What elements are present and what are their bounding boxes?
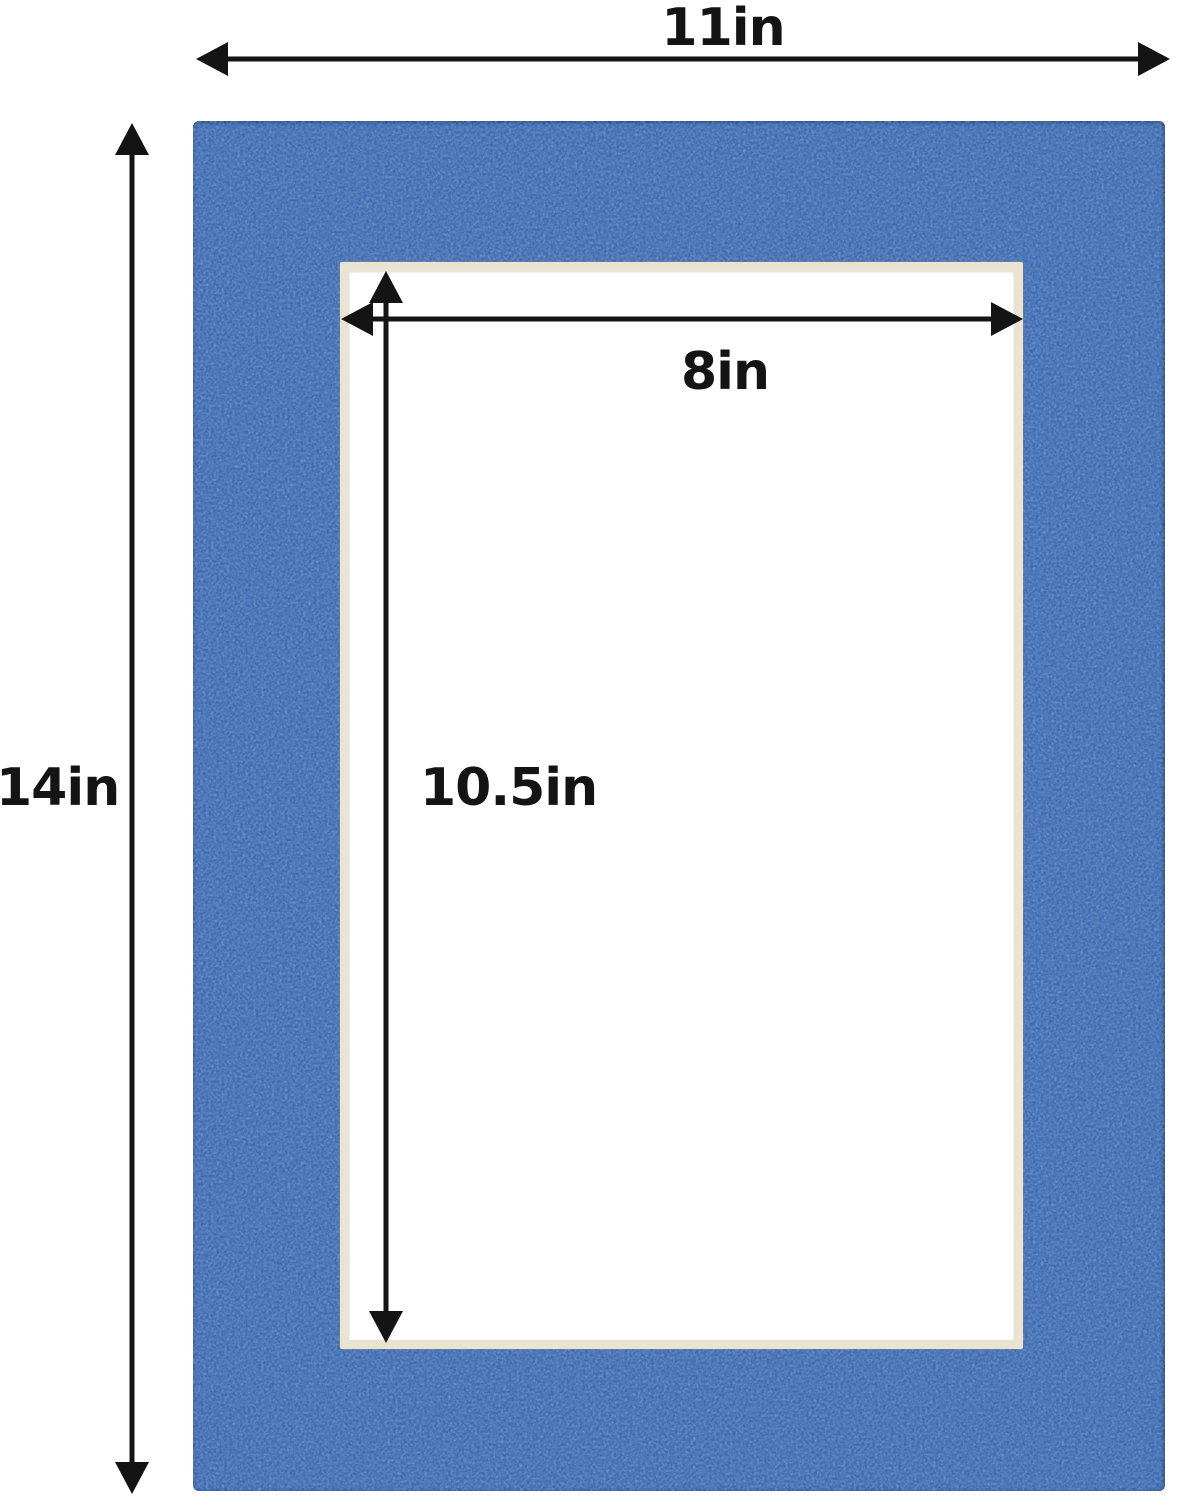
- opening-width-label: 8in: [681, 346, 769, 398]
- outer-height-label: 14in: [0, 762, 119, 814]
- outer-width-label: 11in: [661, 2, 784, 54]
- outer-height-dimension-arrow: [115, 123, 149, 1494]
- opening-height-label: 10.5in: [420, 762, 597, 814]
- product-dimension-diagram: 11in 14in 8in 10.5in: [0, 0, 1182, 1500]
